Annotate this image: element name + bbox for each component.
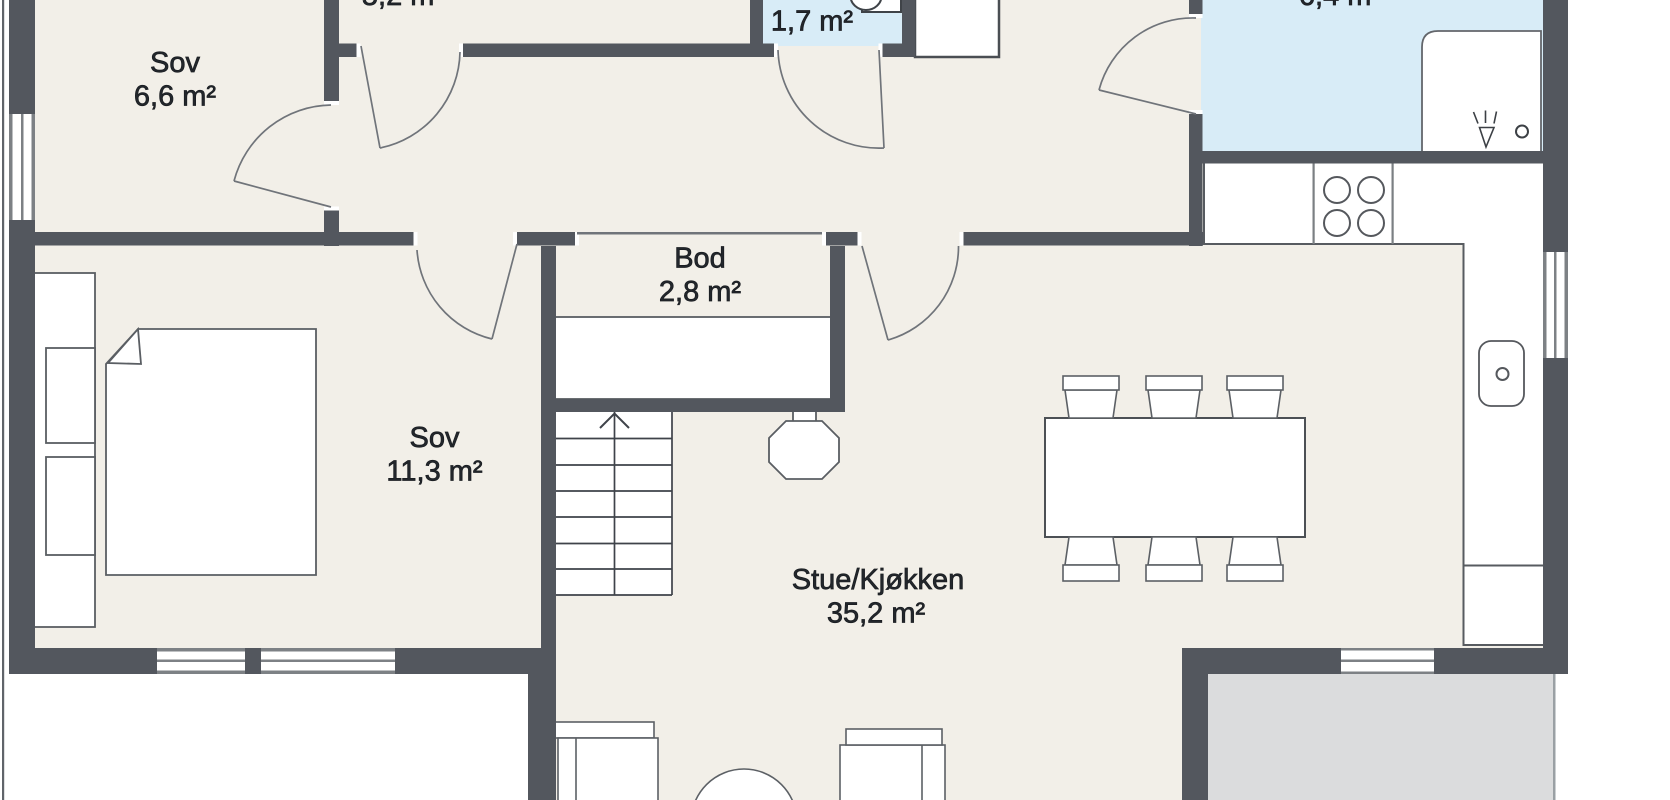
svg-text:1,7 m²: 1,7 m² <box>771 6 854 38</box>
svg-text:2,8 m²: 2,8 m² <box>659 276 742 308</box>
svg-text:Stue/Kjøkken: Stue/Kjøkken <box>792 564 964 596</box>
svg-text:11,3 m²: 11,3 m² <box>386 456 483 488</box>
svg-text:Sov: Sov <box>150 47 200 79</box>
svg-text:Sov: Sov <box>410 422 460 454</box>
svg-text:35,2 m²: 35,2 m² <box>827 598 926 630</box>
svg-text:6,6 m²: 6,6 m² <box>134 81 217 113</box>
svg-text:Bod: Bod <box>674 243 726 275</box>
svg-text:6,4 m²: 6,4 m² <box>1299 0 1382 12</box>
svg-text:5,2 m²: 5,2 m² <box>362 0 445 12</box>
